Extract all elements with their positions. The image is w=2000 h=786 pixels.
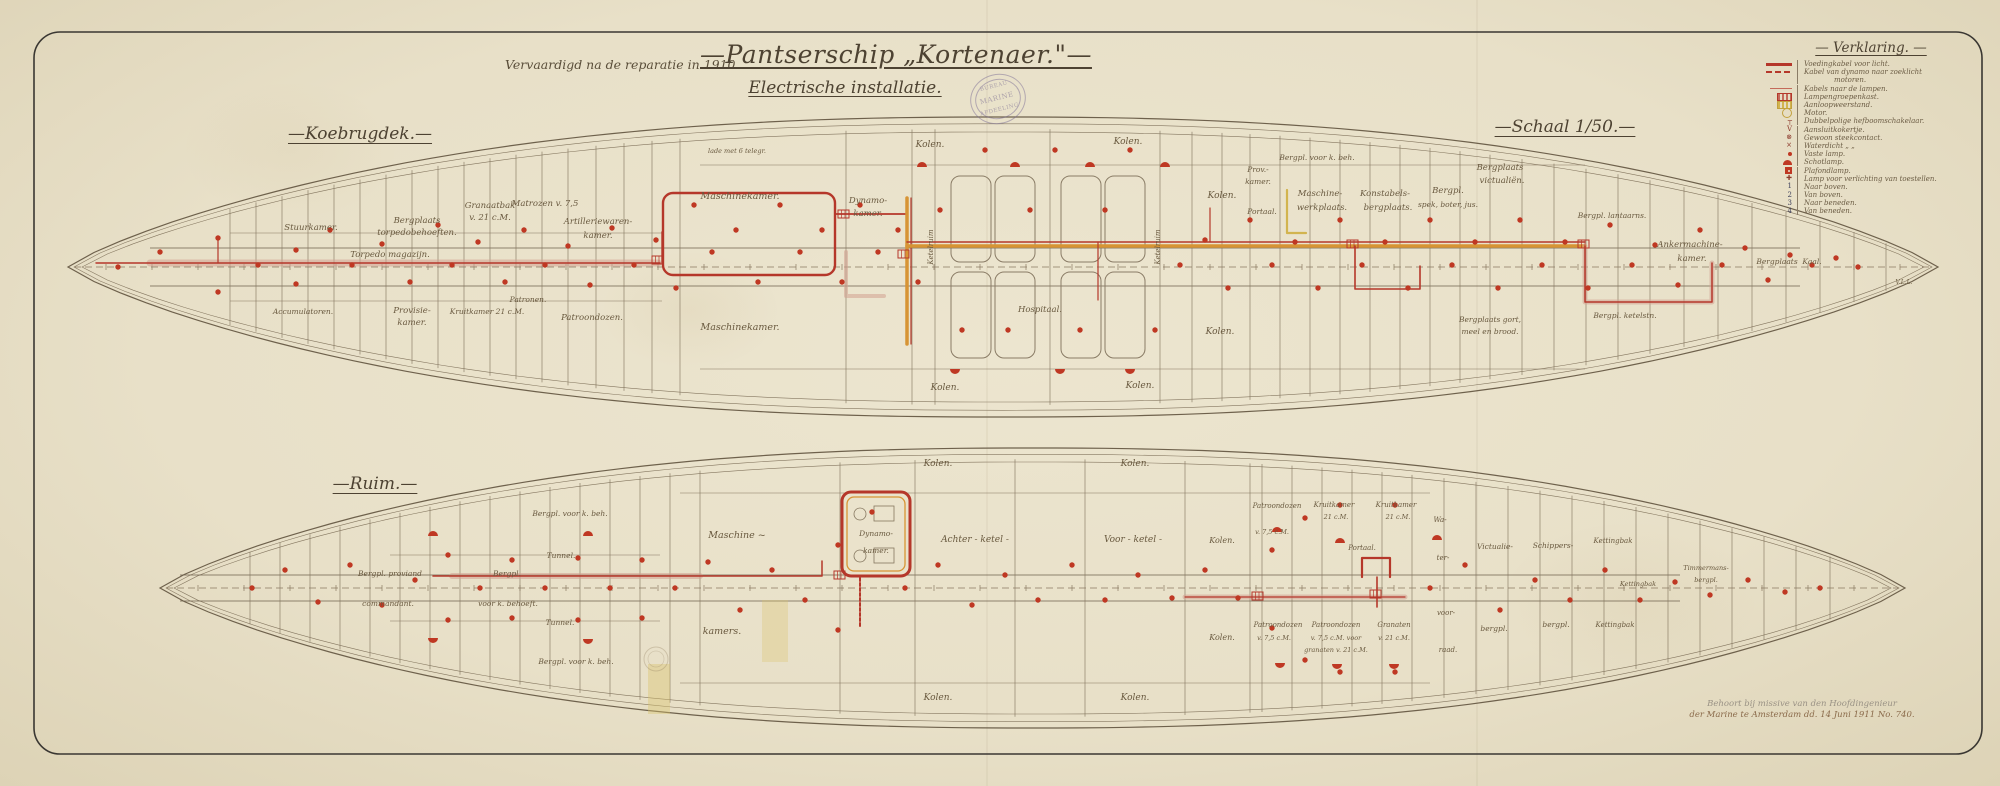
- compartment-label: Maschinekamer.: [699, 322, 779, 333]
- boiler: [1105, 272, 1145, 358]
- compartment-label: kamer.: [853, 209, 882, 219]
- lamp-dot: [691, 202, 696, 207]
- lamp-dot: [1102, 597, 1107, 602]
- legend-label: Naar beneden.: [1797, 199, 1857, 207]
- lamp-dot: [982, 147, 987, 152]
- boiler: [1061, 272, 1101, 358]
- legend-label: Lamp voor verlichting van toestellen.: [1797, 175, 1937, 183]
- compartment-label: Hospitaal.: [1017, 305, 1062, 315]
- lamp-dot: [797, 249, 802, 254]
- compartment-label: Victualie-: [1477, 542, 1513, 551]
- compartment-label: Voor - ketel -: [1104, 535, 1162, 545]
- scale-label: —Schaal 1/50.—: [1465, 117, 1665, 137]
- legend-title: — Verklaring. —: [1760, 40, 1982, 56]
- compartment-label: Artilleriewaren-: [563, 217, 633, 227]
- legend-label: Plafondlamp.: [1797, 167, 1851, 175]
- lamp-dot: [575, 555, 580, 560]
- compartment-label: Patroondozen: [1253, 621, 1303, 629]
- lamp-dot: [1472, 239, 1477, 244]
- compartment-label: Wa-: [1433, 516, 1447, 524]
- legend-item: Lampengroepenkast.: [1760, 93, 1982, 101]
- compartment-label: Matrozen v. 7,5: [511, 199, 579, 209]
- lamp-dot: [802, 597, 807, 602]
- compartment-label: Ketelruim: [927, 229, 935, 265]
- compartment-label: Kettingbak: [1619, 580, 1656, 588]
- lamp-dot: [869, 509, 874, 514]
- deck-label-koebrugdek: —Koebrugdek.—: [255, 124, 465, 144]
- lamp-dot: [1027, 207, 1032, 212]
- lamp-dot: [1337, 669, 1342, 674]
- bulkhead-lamp: [1085, 162, 1095, 167]
- legend-symbol-dot-icon: [1760, 152, 1797, 157]
- lamp-dot: [672, 585, 677, 590]
- compartment-label: v. 7,5 c.M.: [1257, 634, 1291, 642]
- compartment-label: bergplaats.: [1364, 203, 1413, 213]
- legend-label: Kabels naar de lampen.: [1797, 85, 1888, 93]
- compartment-label: Kolen.: [915, 140, 945, 150]
- lamp-dot: [1202, 567, 1207, 572]
- legend-symbol-num-icon: 3: [1760, 200, 1797, 207]
- lamp-dot: [631, 262, 636, 267]
- lamp-dot: [737, 607, 742, 612]
- lamp-dot: [1005, 327, 1010, 332]
- lamp-dot: [733, 227, 738, 232]
- compartment-label: Bergpl. proviand: [357, 569, 422, 578]
- lamp-dot: [705, 559, 710, 564]
- cable-loop: [663, 193, 835, 275]
- lamp-dot: [255, 262, 260, 267]
- compartment-label: Timmermans-: [1683, 564, 1728, 572]
- lamp-dot: [282, 567, 287, 572]
- legend-label: Motor.: [1797, 109, 1827, 117]
- compartment-label: bergpl.: [1480, 624, 1507, 633]
- lamp-dot: [1247, 217, 1252, 222]
- legend-label: Naar boven.: [1797, 183, 1848, 191]
- footer-line2: der Marine te Amsterdam dd. 14 Juni 1911…: [1672, 710, 1932, 721]
- cable-run: [1362, 558, 1390, 577]
- lamp-dot: [969, 602, 974, 607]
- lamp-dot: [587, 282, 592, 287]
- bulkhead-lamp: [1010, 162, 1020, 167]
- lamp-dot: [1077, 327, 1082, 332]
- legend-label: Lampengroepenkast.: [1797, 93, 1879, 101]
- legend-symbol-glyph-icon: ⊗: [1760, 134, 1797, 141]
- compartment-label: Kolen.: [1113, 137, 1143, 147]
- legend-symbol-num-icon: 1: [1760, 183, 1797, 190]
- compartment-label: V.L.L.: [1896, 279, 1913, 286]
- bulkhead-lamp: [1335, 538, 1345, 543]
- bulkhead-lamp: [428, 638, 438, 643]
- compartment-label: bergpl.: [1694, 576, 1718, 584]
- boiler: [1061, 176, 1101, 262]
- lamp-dot: [1169, 595, 1174, 600]
- lamp-dot: [1392, 669, 1397, 674]
- lamp-dot: [1567, 597, 1572, 602]
- lamp-dot: [639, 557, 644, 562]
- lamp-dot: [521, 227, 526, 232]
- lamp-dot: [1532, 577, 1537, 582]
- legend-label: Schotlamp.: [1797, 158, 1844, 166]
- lamp-dot: [1269, 547, 1274, 552]
- lamp-dot: [215, 235, 220, 240]
- compartment-label: Bergpl. voor k. beh.: [531, 509, 607, 518]
- compartment-label: Bergpl.: [1431, 186, 1464, 196]
- bulkhead-lamp: [1055, 369, 1065, 374]
- compartment-label: Torpedo magazijn.: [350, 250, 430, 260]
- lamp-dot: [1495, 285, 1500, 290]
- bulkhead-lamp: [428, 531, 438, 536]
- legend-item: 1Naar boven.: [1760, 183, 1982, 191]
- boiler: [995, 176, 1035, 262]
- lamp-dot: [157, 249, 162, 254]
- compartment-label: Kolen.: [923, 693, 953, 703]
- compartment-label: v. 21 c.M.: [469, 213, 511, 223]
- compartment-label: Ankermachine-: [1656, 240, 1722, 250]
- lamp-dot: [1607, 222, 1612, 227]
- lamp-dot: [1629, 262, 1634, 267]
- compartment-label: Kruitkamer 21 c.M.: [449, 307, 525, 316]
- legend-label: Aanloopweerstand.: [1797, 101, 1872, 109]
- compartment-label: Patroondozen: [1252, 502, 1302, 510]
- lamp-dot: [1745, 577, 1750, 582]
- lamp-dot: [293, 247, 298, 252]
- lamp-dot: [875, 249, 880, 254]
- compartment-label: Kettingbak: [1593, 537, 1633, 545]
- compartment-label: Provisie-: [392, 306, 431, 316]
- legend-symbol-line-dashdot-icon: [1760, 71, 1797, 73]
- legend-item: Vaste lamp.: [1760, 150, 1982, 158]
- legend-label: Waterdicht „ „: [1797, 142, 1855, 150]
- compartment-label: Portaal.: [1347, 544, 1376, 552]
- legend-item: VAansluitkokertje.: [1760, 126, 1982, 134]
- compartment-label: Tunnel.: [547, 551, 576, 560]
- compartment-label: Konstabels-: [1359, 189, 1410, 199]
- lamp-dot: [839, 279, 844, 284]
- lamp-dot: [542, 585, 547, 590]
- compartment-label: Bergplaats: [1476, 163, 1524, 173]
- compartment-label: Bergpl. voor k. beh.: [1278, 153, 1354, 162]
- lamp-dot: [315, 599, 320, 604]
- lamp-dot: [1707, 592, 1712, 597]
- lamp-dot: [1675, 282, 1680, 287]
- lamp-dot: [1602, 567, 1607, 572]
- compartment-label: Kruitkamer: [1313, 501, 1355, 509]
- lamp-dot: [1302, 657, 1307, 662]
- lamp-dot: [937, 207, 942, 212]
- compartment-label: torpedobehoeften.: [377, 228, 457, 238]
- bulkhead-lamp: [1332, 664, 1342, 669]
- lamp-dot: [653, 237, 658, 242]
- legend-symbol-box-red-icon: [1760, 93, 1797, 101]
- bulkhead-lamp: [1389, 664, 1399, 669]
- compartment-label: granaten v. 21 c.M.: [1304, 646, 1368, 654]
- legend-symbol-num-icon: 4: [1760, 208, 1797, 215]
- lamp-dot: [607, 585, 612, 590]
- lamp-dot: [293, 281, 298, 286]
- compartment-label: Dynamo-: [848, 196, 887, 206]
- lamp-dot: [1765, 277, 1770, 282]
- legend-item: Motor.: [1760, 109, 1982, 117]
- compartment-label: v. 7,5 c.M. voor: [1311, 634, 1362, 642]
- compartment-label: Prov.-: [1246, 165, 1269, 174]
- lamp-dot: [902, 585, 907, 590]
- legend-symbol-num-icon: 2: [1760, 192, 1797, 199]
- legend-item: 4Van beneden.: [1760, 207, 1982, 215]
- compartment-label: Achter - ketel -: [940, 535, 1009, 545]
- lamp-dot: [215, 289, 220, 294]
- lamp-dot: [115, 264, 120, 269]
- legend-symbol-line-thin-icon: [1760, 88, 1797, 89]
- legend-label: Voedingkabel voor licht.: [1797, 60, 1890, 68]
- lamp-dot: [709, 249, 714, 254]
- compartment-label: Bergpl.: [492, 569, 521, 578]
- legend-label: Dubbelpolige hefboomschakelaar.: [1797, 117, 1924, 125]
- tape-mark: [762, 600, 788, 662]
- lamp-dot: [1135, 572, 1140, 577]
- dynamo-machine: [874, 506, 894, 521]
- legend-symbol-glyph-icon: ┬: [1760, 118, 1797, 125]
- compartment-label: raad.: [1439, 646, 1457, 654]
- lamp-dot: [509, 557, 514, 562]
- lamp-dot: [1855, 264, 1860, 269]
- compartment-label: 21 c.M.: [1323, 513, 1349, 521]
- lamp-dot: [1359, 262, 1364, 267]
- legend-item: Plafondlamp.: [1760, 166, 1982, 174]
- compartment-label: kamer.: [1677, 254, 1706, 264]
- legend-label: motoren.: [1797, 76, 1866, 84]
- lamp-dot: [1382, 239, 1387, 244]
- legend-item: Schotlamp.: [1760, 158, 1982, 166]
- lamp-dot: [777, 202, 782, 207]
- compartment-label: kamer.: [1245, 177, 1271, 186]
- compartment-label: Stuurkamer.: [284, 223, 337, 233]
- lamp-dot: [1337, 217, 1342, 222]
- lamp-dot: [1127, 147, 1132, 152]
- compartment-label: voor k. behoeft.: [478, 599, 538, 608]
- lamp-dot: [755, 279, 760, 284]
- compartment-label: spek, boter, jus.: [1418, 200, 1478, 209]
- compartment-label: kamer.: [583, 231, 612, 241]
- bulkhead-lamp: [1432, 535, 1442, 540]
- footer-line1: Behoort bij missive van den Hoofdingenie…: [1672, 699, 1932, 710]
- compartment-label: Kolen.: [1207, 191, 1237, 201]
- legend: — Verklaring. — Voedingkabel voor licht.…: [1760, 40, 1982, 216]
- lamp-dot: [1782, 589, 1787, 594]
- lamp-dot: [1817, 585, 1822, 590]
- compartment-label: Tunnel.: [546, 618, 575, 627]
- compartment-label: Bergpl. voor k. beh.: [537, 657, 613, 666]
- bulkhead-lamp: [1125, 369, 1135, 374]
- compartment-label: Bergpl. ketelstn.: [1592, 311, 1656, 320]
- bulkhead-lamp: [1160, 162, 1170, 167]
- lamp-dot: [1302, 515, 1307, 520]
- lamp-dot: [349, 262, 354, 267]
- drawing-subtitle: Electrische installatie.: [740, 78, 950, 98]
- compartment-label: Bergplaats: [1755, 257, 1797, 266]
- lamp-dot: [565, 243, 570, 248]
- compartment-label: Bergplaats: [393, 216, 441, 226]
- compartment-label: Granaten: [1377, 621, 1411, 629]
- legend-item: Kabels naar de lampen.: [1760, 85, 1982, 93]
- lamp-dot: [1269, 262, 1274, 267]
- bulkhead-lamp: [917, 162, 927, 167]
- lamp-dot: [895, 227, 900, 232]
- lamp-dot: [1427, 217, 1432, 222]
- footer-note: Behoort bij missive van den Hoofdingenie…: [1672, 699, 1932, 721]
- lamp-dot: [502, 279, 507, 284]
- legend-item: 2Van boven.: [1760, 191, 1982, 199]
- lamp-dot: [1152, 327, 1157, 332]
- lamp-dot: [1315, 285, 1320, 290]
- compartment-label: Maschine-: [1297, 189, 1343, 199]
- compartment-label: Kolen.: [1125, 381, 1155, 391]
- dynamo-machine: [854, 508, 866, 520]
- compartment-label: Kolen.: [930, 383, 960, 393]
- compartment-label: Dynamo-: [858, 529, 893, 538]
- lamp-dot: [1177, 262, 1182, 267]
- compartment-label: Bergpl. lantaarns.: [1577, 211, 1647, 220]
- legend-item-cont: motoren.: [1760, 76, 1982, 84]
- compartment-label: Kolen.: [1205, 327, 1235, 337]
- lamp-dot: [1449, 262, 1454, 267]
- lamp-dot: [835, 627, 840, 632]
- legend-symbol-boxdot-icon: [1760, 167, 1797, 174]
- compartment-label: Patroondozen: [1311, 621, 1361, 629]
- compartment-label: Accumulatoren.: [272, 307, 333, 316]
- boiler: [995, 272, 1035, 358]
- lamp-dot: [1427, 585, 1432, 590]
- compartment-label: ter-: [1437, 554, 1450, 562]
- lamp-dot: [935, 562, 940, 567]
- drawing-title: —Pantserschip „Kortenaer."—: [700, 40, 1040, 69]
- lamp-dot: [1539, 262, 1544, 267]
- lamp-dot: [673, 285, 678, 290]
- legend-label: Vaste lamp.: [1797, 150, 1845, 158]
- lamp-dot: [1069, 562, 1074, 567]
- bulkhead-lamp: [950, 369, 960, 374]
- lamp-dot: [445, 552, 450, 557]
- drawing-sheet: Stuurkamer.Bergplaatstorpedobehoeften.To…: [0, 0, 2000, 786]
- legend-item: Kabel van dynamo naar zoeklicht: [1760, 68, 1982, 76]
- legend-symbol-glyph-icon: ✚: [1760, 175, 1797, 182]
- compartment-label: Kolen.: [1120, 459, 1150, 469]
- lamp-dot: [1719, 262, 1724, 267]
- compartment-label: kamer.: [397, 318, 426, 328]
- cable-run: [1355, 246, 1420, 289]
- bulkhead-lamp: [583, 639, 593, 644]
- lamp-dot: [475, 239, 480, 244]
- legend-item: ⊗Gewoon steekcontact.: [1760, 134, 1982, 142]
- lamp-dot: [1202, 237, 1207, 242]
- legend-item: ✚Lamp voor verlichting van toestellen.: [1760, 175, 1982, 183]
- lamp-dot: [959, 327, 964, 332]
- lamp-dot: [1225, 285, 1230, 290]
- deck-label-ruim: —Ruim.—: [300, 474, 450, 494]
- lamp-dot: [1002, 572, 1007, 577]
- legend-symbol-glyph-icon: ×: [1760, 142, 1797, 149]
- compartment-label: v. 21 c.M.: [1378, 634, 1410, 642]
- lamp-dot: [379, 241, 384, 246]
- cable-run: [846, 252, 884, 296]
- compartment-label: Patronen.: [509, 295, 547, 304]
- lamp-dot: [1742, 245, 1747, 250]
- legend-label: Kabel van dynamo naar zoeklicht: [1797, 68, 1922, 76]
- legend-item: ×Waterdicht „ „: [1760, 142, 1982, 150]
- legend-items: Voedingkabel voor licht.Kabel van dynamo…: [1760, 60, 1982, 216]
- lamp-dot: [1292, 239, 1297, 244]
- lamp-dot: [542, 262, 547, 267]
- compartment-label: Maschinekamer.: [699, 191, 779, 202]
- legend-item: Voedingkabel voor licht.: [1760, 60, 1982, 68]
- compartment-label: Kolen.: [923, 459, 953, 469]
- bulkhead-lamp: [583, 531, 593, 536]
- compartment-label: kamers.: [703, 626, 742, 637]
- lamp-dot: [1052, 147, 1057, 152]
- compartment-label: Kaal.: [1801, 257, 1821, 266]
- lamp-dot: [509, 615, 514, 620]
- legend-item: 3Naar beneden.: [1760, 199, 1982, 207]
- compartment-label: v. 7,5 c.M.: [1255, 528, 1289, 536]
- lamp-dot: [407, 279, 412, 284]
- compartment-label: victualiën.: [1480, 176, 1525, 186]
- legend-symbol-line-thick-icon: [1760, 63, 1797, 66]
- compartment-label: Bergplaats gort,: [1458, 315, 1521, 324]
- compartment-label: kamer.: [863, 546, 889, 555]
- legend-label: Van beneden.: [1797, 207, 1852, 215]
- compartment-label: meel en brood.: [1461, 327, 1518, 336]
- lamp-dot: [769, 567, 774, 572]
- legend-item: ┬Dubbelpolige hefboomschakelaar.: [1760, 117, 1982, 125]
- compartment-label: 21 c.M.: [1385, 513, 1411, 521]
- lamp-dot: [819, 227, 824, 232]
- lamp-dot: [477, 585, 482, 590]
- compartment-label: voor-: [1437, 609, 1456, 617]
- compartment-label: Granaatbak: [465, 201, 516, 211]
- boiler: [951, 272, 991, 358]
- lamp-dot: [915, 279, 920, 284]
- compartment-label: commandant.: [362, 599, 414, 608]
- lamp-dot: [835, 542, 840, 547]
- lamp-dot: [1102, 207, 1107, 212]
- lamp-dot: [347, 562, 352, 567]
- lamp-dot: [412, 577, 417, 582]
- lamp-dot: [445, 617, 450, 622]
- legend-symbol-dome-icon: [1760, 160, 1797, 165]
- legend-label: Van boven.: [1797, 191, 1843, 199]
- lamp-dot: [1562, 239, 1567, 244]
- lamp-dot: [1497, 607, 1502, 612]
- lamp-dot: [1035, 597, 1040, 602]
- compartment-label: bergpl.: [1542, 620, 1569, 629]
- bulkhead-lamp: [1275, 663, 1285, 668]
- compartment-label: Kolen.: [1208, 536, 1235, 545]
- compartment-label: Portaal.: [1246, 207, 1277, 216]
- compartment-label: werkplaats.: [1297, 203, 1347, 213]
- lamp-dot: [639, 615, 644, 620]
- lamp-dot: [249, 585, 254, 590]
- lamp-dot: [1235, 595, 1240, 600]
- lamp-dot: [449, 262, 454, 267]
- lamp-dot: [1697, 227, 1702, 232]
- compartment-label: Maschine ~: [707, 530, 765, 541]
- lamp-dot: [575, 617, 580, 622]
- compartment-label: Kolen.: [1208, 633, 1235, 642]
- compartment-label: Schippers-: [1533, 541, 1574, 550]
- compartment-label: Kolen.: [1120, 693, 1150, 703]
- compartment-label: Ketelruim: [1154, 229, 1162, 265]
- boiler: [1105, 176, 1145, 262]
- lamp-dot: [1585, 285, 1590, 290]
